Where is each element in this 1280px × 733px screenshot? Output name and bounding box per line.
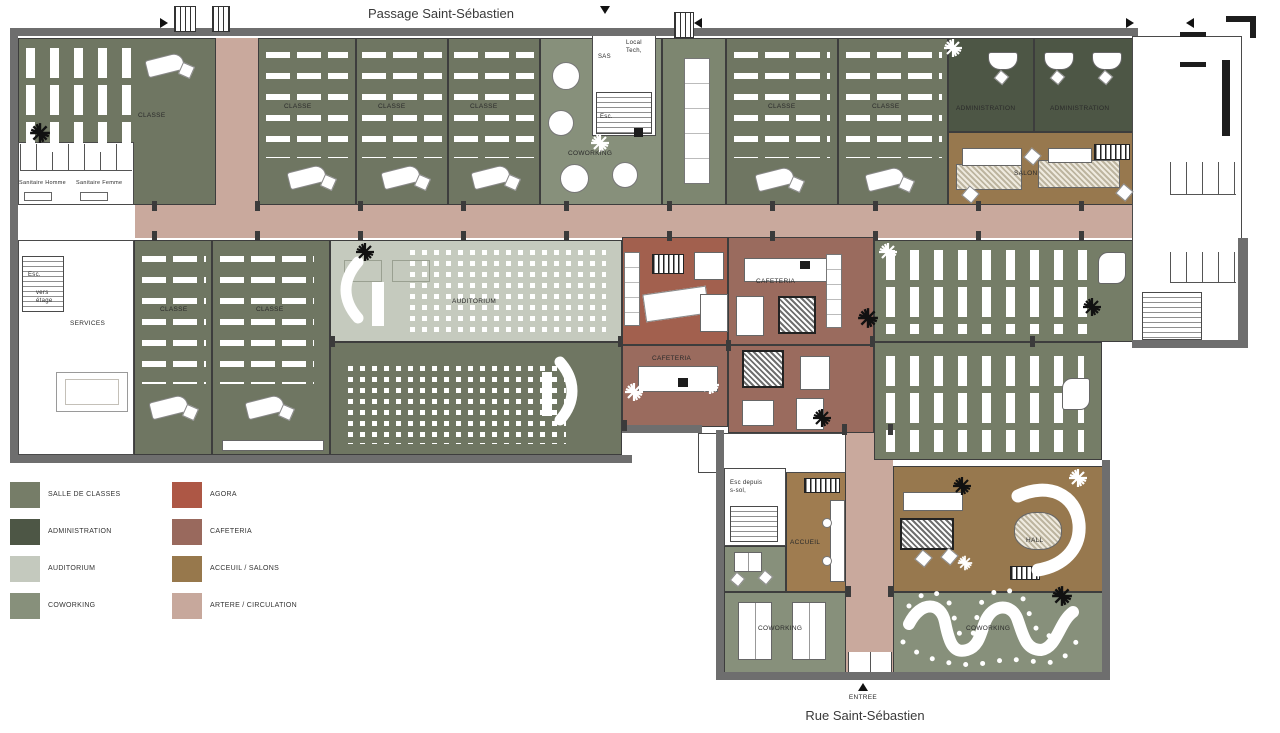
entrance-label: ENTREE [838, 694, 888, 701]
coworking-label: COWORKING [758, 625, 802, 632]
classe-label: CLASSE [768, 103, 795, 110]
legend-label-classes: SALLE DE CLASSES [48, 491, 121, 498]
column-row-bottom [152, 231, 1142, 241]
sanitaire-femme-label: Sanitaire Femme [76, 180, 122, 186]
wall-bottom-main [10, 455, 632, 463]
esc-ssol-label: Esc depuis s-sol, [730, 480, 766, 495]
legend-swatch-administration [10, 519, 40, 545]
classe-label: CLASSE [256, 306, 283, 313]
hall-curved-sofa [1018, 490, 1079, 570]
wall-left [10, 28, 18, 463]
wall-annex-bottom [1132, 340, 1246, 348]
legend-label-acceuil: ACCEUIL / SALONS [210, 565, 279, 572]
door-arrow-icon [600, 6, 610, 14]
wall-piece [1250, 16, 1256, 38]
door-arrow-icon [694, 18, 702, 28]
accueil-label: ACCUEIL [790, 539, 820, 546]
duct [634, 128, 643, 137]
stage-arc [346, 262, 358, 318]
legend-label-administration: ADMINISTRATION [48, 528, 112, 535]
classe-label: CLASSE [160, 306, 187, 313]
street-label-top: Passage Saint-Sébastien [368, 6, 514, 21]
cafeteria-label: CAFETERIA [756, 278, 795, 285]
column-row-top [152, 201, 1142, 211]
legend-label-cafeteria: CAFETERIA [210, 528, 252, 535]
cafeteria-appliance [800, 261, 810, 269]
legend-label-artere: ARTERE / CIRCULATION [210, 602, 297, 609]
column [888, 586, 893, 597]
legend-label-agora: AGORA [210, 491, 237, 498]
column [846, 586, 851, 597]
street-label-bottom: Rue Saint-Sébastien [720, 708, 1010, 723]
classe-label: CLASSE [138, 112, 165, 119]
auditorium-label: AUDITORIUM [452, 298, 496, 305]
classe-label: CLASSE [470, 103, 497, 110]
door-arrow-icon [1126, 18, 1134, 28]
column [888, 424, 893, 435]
door-arrow-icon [160, 18, 168, 28]
wall-wing-right [1102, 460, 1110, 680]
esc-label: Esc. [600, 114, 613, 120]
cafeteria-label: CAFETERIA [652, 355, 691, 362]
legend-swatch-acceuil [172, 556, 202, 582]
column [618, 336, 623, 347]
floor-plan: Passage Saint-Sébastien Rue Saint-Sébast… [0, 0, 1280, 733]
grate-icon [674, 12, 694, 38]
services-label: SERVICES [70, 320, 105, 327]
wall-piece [1180, 62, 1206, 67]
column [726, 340, 731, 351]
column [622, 420, 627, 431]
administration-label: ADMINISTRATION [1050, 105, 1109, 112]
wall-wing-bottom [716, 672, 1110, 680]
vers-etage-label: vers étage [36, 290, 62, 305]
coworking-label: COWORKING [966, 625, 1010, 632]
column [842, 424, 847, 435]
sanitaire-homme-label: Sanitaire Homme [19, 180, 66, 186]
salon-label: SALON [1014, 170, 1038, 177]
door-arrow-icon [1186, 18, 1194, 28]
stage-arc [560, 362, 572, 420]
legend-swatch-artere [172, 593, 202, 619]
grate-icon [174, 6, 196, 32]
column [870, 336, 875, 347]
classe-label: CLASSE [378, 103, 405, 110]
classe-label: CLASSE [284, 103, 311, 110]
wall-wing-left [716, 430, 724, 680]
local-tech-label: Local Tech, [626, 40, 654, 55]
wall-piece [1222, 60, 1230, 136]
column [330, 336, 335, 347]
legend-swatch-coworking [10, 593, 40, 619]
legend-swatch-cafeteria [172, 519, 202, 545]
services-esc-label: Esc. [28, 272, 41, 278]
coworking-label: COWORKING [568, 150, 612, 157]
hall-label: HALL [1026, 537, 1043, 544]
legend-swatch-classes [10, 482, 40, 508]
column [1030, 336, 1035, 347]
administration-label: ADMINISTRATION [956, 105, 1015, 112]
classe-label: CLASSE [872, 103, 899, 110]
wall-piece [1180, 32, 1206, 37]
sas-label: SAS [598, 54, 611, 60]
legend-label-coworking: COWORKING [48, 602, 95, 609]
legend-swatch-auditorium [10, 556, 40, 582]
wall-annex-right [1238, 238, 1248, 348]
wall-step [622, 425, 702, 433]
cafeteria-appliance [678, 378, 688, 387]
legend-swatch-agora [172, 482, 202, 508]
legend-label-auditorium: AUDITORIUM [48, 565, 95, 572]
entrance-arrow-icon [858, 683, 868, 691]
grate-icon [212, 6, 230, 32]
